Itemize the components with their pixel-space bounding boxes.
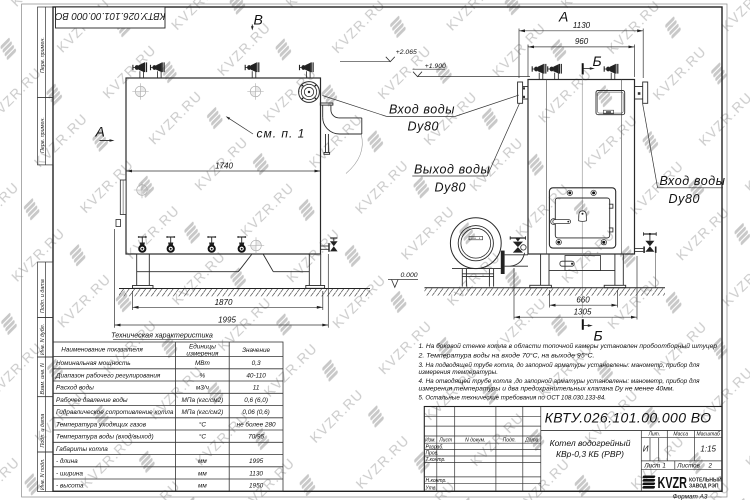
svg-text:Подп. и дата: Подп. и дата [40, 279, 46, 313]
svg-text:Подп. и дата: Подп. и дата [40, 414, 46, 448]
svg-text:70/95: 70/95 [248, 434, 264, 441]
svg-text:Dy80: Dy80 [435, 181, 467, 195]
svg-text:Изм.: Изм. [425, 437, 436, 443]
svg-text:+2.065: +2.065 [396, 49, 417, 56]
svg-text:0,6 (6,0): 0,6 (6,0) [244, 397, 268, 404]
svg-text:Утв.: Утв. [426, 486, 437, 492]
svg-text:КВТУ.026.101.00.000 ВО: КВТУ.026.101.00.000 ВО [545, 410, 712, 426]
svg-text:0.000: 0.000 [401, 272, 418, 279]
svg-text:И: И [643, 445, 649, 454]
svg-text:40-110: 40-110 [246, 372, 266, 379]
svg-text:см. п. 1: см. п. 1 [257, 127, 306, 141]
svg-text:1740: 1740 [215, 161, 233, 170]
svg-text:Техническая характеристика: Техническая характеристика [111, 331, 213, 340]
svg-text:Наименование показателя: Наименование показателя [61, 347, 143, 354]
svg-text:Рабочее давление воды: Рабочее давление воды [56, 396, 128, 404]
svg-text:5. Остальные технические треб: 5. Остальные технические требования по О… [419, 394, 607, 402]
svg-text:- высота: - высота [56, 483, 84, 490]
svg-text:- длина: - длина [56, 457, 78, 465]
svg-text:Котел водогрейный: Котел водогрейный [550, 438, 631, 448]
svg-text:Гидравлическое сопротивление к: Гидравлическое сопротивление котла [56, 408, 174, 416]
svg-text:А: А [95, 124, 105, 140]
svg-text:1130: 1130 [573, 21, 591, 30]
svg-text:Перв. примен.: Перв. примен. [40, 117, 46, 153]
svg-text:Вход воды: Вход воды [660, 174, 726, 188]
svg-text:2. Температура воды на входе: 2. Температура воды на входе 70°С, на вы… [417, 351, 594, 359]
svg-text:1. На боковой стенке котла в: 1. На боковой стенке котла в области топ… [419, 342, 718, 350]
svg-text:МВт: МВт [195, 360, 211, 367]
svg-text:Взам. инв. N: Взам. инв. N [40, 363, 46, 395]
svg-text:Разраб.: Разраб. [426, 444, 444, 450]
svg-text:N докум.: N докум. [465, 437, 485, 443]
svg-text:Диапазон рабочего регулировани: Диапазон рабочего регулирования [55, 371, 161, 379]
svg-text:960: 960 [575, 37, 589, 46]
svg-text:660: 660 [576, 296, 590, 305]
svg-text:Б: Б [593, 53, 602, 69]
svg-text:Перв. примен.: Перв. примен. [40, 37, 46, 73]
svg-text:не более 280: не более 280 [237, 420, 276, 428]
svg-text:Лист: Лист [643, 463, 660, 470]
svg-text:ЗАВОД РЭП: ЗАВОД РЭП [689, 484, 719, 490]
svg-text:В: В [254, 12, 263, 28]
svg-text:0,3: 0,3 [252, 360, 261, 367]
svg-text:Выход воды: Выход воды [414, 162, 490, 176]
svg-text:1130: 1130 [249, 470, 263, 477]
svg-text:Лит.: Лит. [647, 432, 660, 438]
svg-text:мм: мм [198, 458, 207, 465]
svg-text:МПа (кгс/см2): МПа (кгс/см2) [182, 409, 224, 416]
svg-text:Листов: Листов [676, 463, 700, 470]
svg-text:1305: 1305 [574, 308, 592, 317]
svg-text:КОТЕЛЬНЫЙ: КОТЕЛЬНЫЙ [689, 476, 722, 484]
svg-text:4. На отводящей трубе котла ,: 4. На отводящей трубе котла ,до запорной… [419, 377, 700, 385]
svg-text:Dy80: Dy80 [408, 119, 440, 133]
svg-text:Масса: Масса [673, 432, 688, 438]
svg-text:°С: °С [199, 433, 207, 441]
svg-text:1:15: 1:15 [700, 445, 716, 454]
svg-text:11: 11 [253, 385, 260, 392]
svg-text:Единицы: Единицы [189, 342, 216, 350]
svg-text:3. На подводящей трубе котла,: 3. На подводящей трубе котла, до запорно… [419, 361, 700, 369]
svg-text:Н.контр.: Н.контр. [426, 478, 447, 484]
svg-text:Температура воды (вход/выход): Температура воды (вход/выход) [56, 433, 154, 441]
svg-text:Номинальная мощность: Номинальная мощность [56, 360, 131, 367]
svg-text:Температура уходящих газов: Температура уходящих газов [56, 420, 147, 428]
svg-text:А: А [558, 9, 568, 25]
svg-text:измерения: измерения [186, 350, 219, 357]
svg-text:Б: Б [594, 328, 603, 344]
svg-text:%: % [200, 372, 206, 379]
svg-text:1995: 1995 [249, 458, 264, 465]
svg-text:мм: мм [198, 470, 207, 477]
svg-text:1870: 1870 [215, 298, 233, 307]
svg-text:измерения температуры и два пр: измерения температуры и два предохраните… [419, 384, 675, 392]
svg-text:мм: мм [198, 483, 207, 490]
svg-text:- ширина: - ширина [56, 470, 83, 477]
svg-text:Dy80: Dy80 [669, 192, 701, 206]
svg-text:м3/ч: м3/ч [196, 385, 210, 392]
svg-text:Подп.: Подп. [503, 437, 516, 443]
svg-text:Расход воды: Расход воды [56, 384, 94, 392]
svg-text:измерения температуры.: измерения температуры. [419, 369, 499, 376]
svg-text:Вход воды: Вход воды [389, 103, 455, 117]
svg-text:Значение: Значение [242, 347, 270, 354]
svg-text:Масштаб: Масштаб [697, 432, 721, 438]
svg-text:1950: 1950 [249, 483, 264, 490]
svg-text:КВТУ.026.101.00.000 ВО: КВТУ.026.101.00.000 ВО [55, 10, 166, 21]
svg-text:Инв. N дубл.: Инв. N дубл. [40, 324, 46, 355]
svg-text:МПа (кгс/см2): МПа (кгс/см2) [182, 397, 224, 404]
svg-text:1: 1 [662, 463, 665, 470]
svg-text:1995: 1995 [218, 315, 236, 324]
svg-text:КВр-0,3 КБ (РВР): КВр-0,3 КБ (РВР) [556, 449, 624, 459]
svg-text:Т.контр.: Т.контр. [426, 457, 446, 463]
svg-text:KVZR: KVZR [658, 475, 688, 492]
svg-text:2: 2 [708, 463, 713, 470]
svg-text:Габариты котла: Габариты котла [56, 445, 108, 453]
svg-text:Дата: Дата [524, 437, 538, 443]
svg-text:Лист: Лист [438, 437, 452, 443]
svg-text:Пров.: Пров. [426, 451, 439, 457]
svg-text:Формат А3: Формат А3 [673, 494, 708, 500]
svg-text:0,06 (0,6): 0,06 (0,6) [242, 409, 269, 416]
svg-text:+1.900: +1.900 [425, 63, 446, 70]
svg-text:Инв. N подл.: Инв. N подл. [40, 458, 46, 490]
svg-text:°С: °С [199, 420, 207, 428]
